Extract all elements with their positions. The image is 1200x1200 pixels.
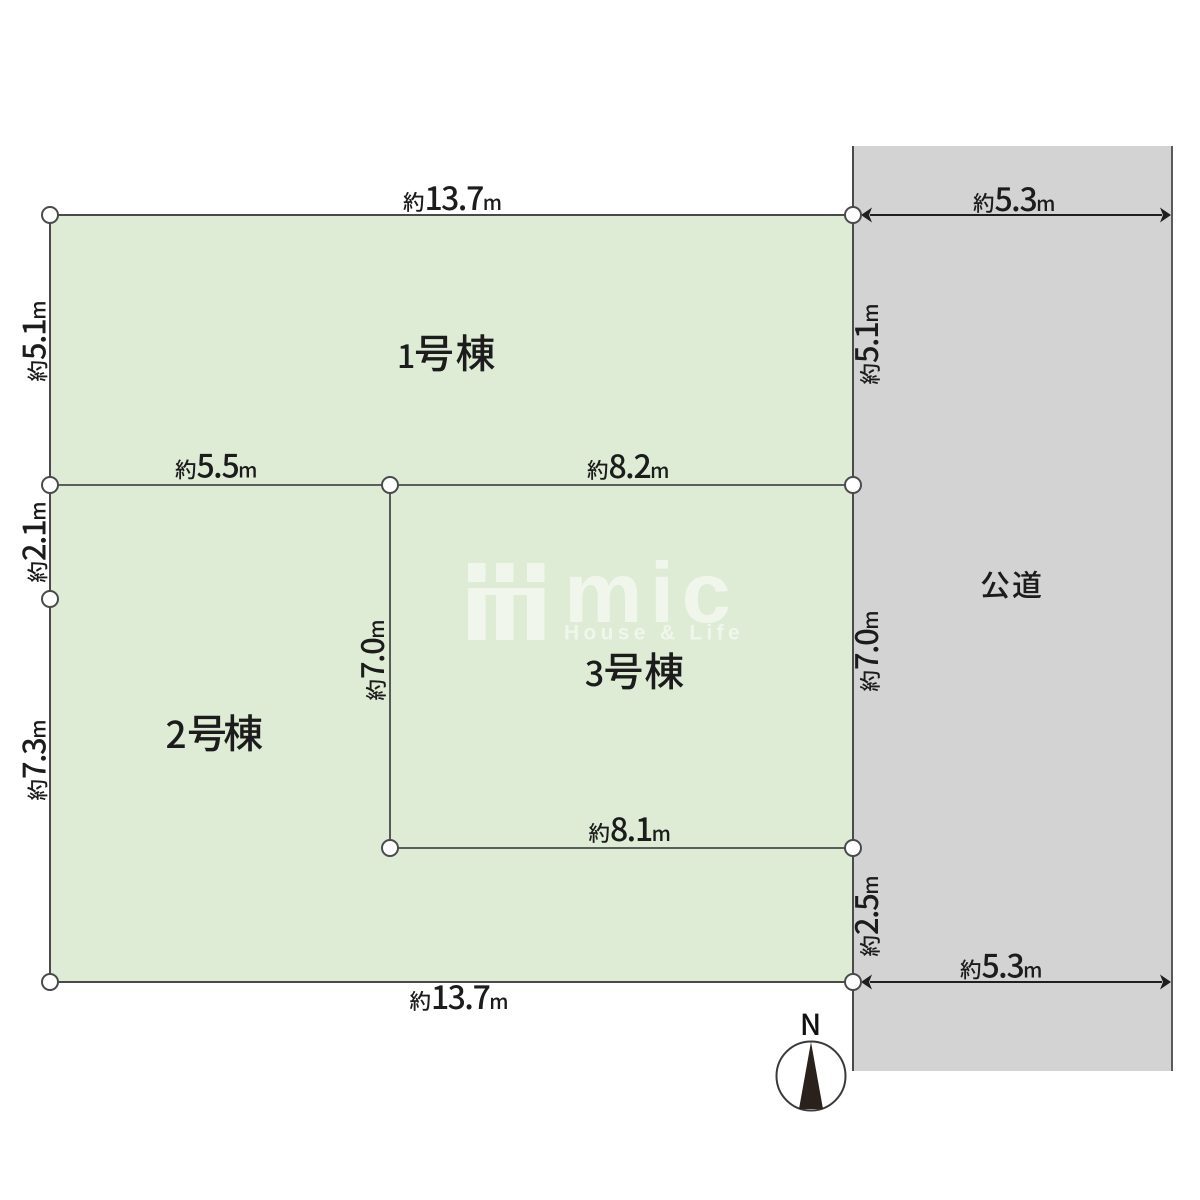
svg-text:House & Life: House & Life bbox=[564, 622, 744, 645]
